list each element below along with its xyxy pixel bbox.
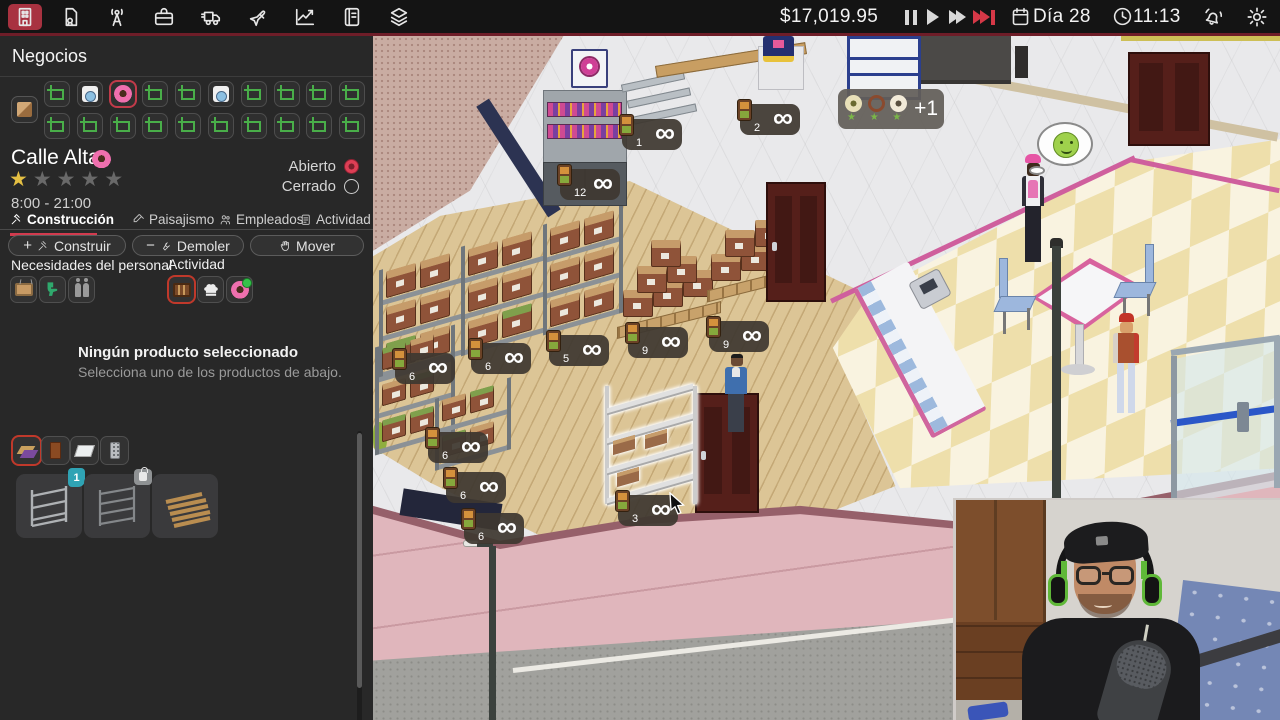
frame-icon <box>247 89 261 100</box>
business-slot-grid <box>44 81 366 139</box>
box-icon <box>17 102 32 117</box>
tab-label: Paisajismo <box>149 212 214 227</box>
washer-icon <box>82 86 98 102</box>
construir-button[interactable]: + Construir <box>8 235 126 256</box>
frame-icon <box>345 89 359 100</box>
wall-display-icon <box>74 445 95 457</box>
hammer-icon <box>37 240 49 252</box>
locked-shelf-item-card[interactable] <box>84 474 150 538</box>
business-building-icon[interactable] <box>8 4 42 30</box>
toilet-need-button[interactable] <box>39 276 66 303</box>
calendar-icon <box>1003 3 1037 29</box>
infinity-icon: ∞ <box>479 472 499 500</box>
order-quantity: 6 <box>442 450 448 462</box>
tab-label: Construcción <box>27 212 114 227</box>
tab-empleados[interactable]: Empleados <box>219 212 304 227</box>
order-quantity: 3 <box>632 513 638 525</box>
webcam-overlay <box>953 498 1280 720</box>
money-display: $17,019.95 <box>780 6 878 28</box>
frame-icon <box>214 121 228 132</box>
star-icon: ★ <box>104 168 128 191</box>
business-slot-washer[interactable] <box>77 81 103 107</box>
donut-icon <box>231 281 249 299</box>
ledger-book-icon[interactable] <box>335 4 369 30</box>
owned-count-badge: 1 <box>68 468 85 487</box>
infinity-icon: ∞ <box>428 353 448 381</box>
business-slot-donut[interactable] <box>110 81 136 107</box>
headphone-cup <box>1142 574 1162 606</box>
demoler-button[interactable]: − Demoler <box>132 235 244 256</box>
briefcase-icon[interactable] <box>147 4 181 30</box>
business-slot-frame[interactable] <box>110 113 136 139</box>
product-thumbnail-icon <box>737 99 752 121</box>
business-slot-frame[interactable] <box>339 81 365 107</box>
wrench-icon <box>160 240 172 252</box>
logistics-truck-icon[interactable] <box>194 4 228 30</box>
product-thumbnail-icon <box>461 508 476 530</box>
business-slot-frame[interactable] <box>175 81 201 107</box>
staff-needs-label: Necesidades del personal <box>11 257 172 273</box>
business-slot-frame[interactable] <box>241 81 267 107</box>
infinity-icon: ∞ <box>655 119 675 147</box>
product-thumbnail-icon <box>625 322 640 344</box>
stock-order-badge[interactable]: 6 ∞ <box>395 353 455 384</box>
shovel-icon <box>132 213 145 226</box>
stock-order-badge[interactable]: 6 ∞ <box>464 513 524 544</box>
infinity-icon: ∞ <box>582 335 602 363</box>
fast-forward-button[interactable] <box>949 8 966 26</box>
product-thumbnail-icon <box>392 348 407 370</box>
business-slot-frame[interactable] <box>339 113 365 139</box>
closed-label: Cerrado <box>282 178 336 195</box>
warehouse-slot[interactable] <box>11 96 38 123</box>
product-thumbnail-icon <box>425 427 440 449</box>
open-label: Abierto <box>288 158 336 175</box>
business-slot-frame[interactable] <box>208 113 234 139</box>
stats-chart-icon[interactable] <box>288 4 322 30</box>
production-activity-button[interactable] <box>197 276 224 303</box>
closed-radio[interactable] <box>344 179 359 194</box>
tab-label: Actividad <box>316 212 371 227</box>
business-slot-frame[interactable] <box>274 81 300 107</box>
business-slot-frame[interactable] <box>241 113 267 139</box>
stock-order-badge[interactable]: 6 ∞ <box>428 432 488 463</box>
frame-icon <box>280 89 294 100</box>
pallet-item-card[interactable] <box>152 474 218 538</box>
frame-icon <box>50 121 64 132</box>
order-quantity: 5 <box>563 353 569 365</box>
business-slot-frame[interactable] <box>306 113 332 139</box>
business-slot-frame[interactable] <box>306 81 332 107</box>
shelf-item-card[interactable]: 1 <box>16 474 82 538</box>
tv-icon <box>15 283 33 296</box>
business-slot-frame[interactable] <box>44 113 70 139</box>
order-quantity: 6 <box>478 531 484 543</box>
stock-order-badge[interactable]: 12 ∞ <box>560 169 620 200</box>
stock-order-badge[interactable]: 6 ∞ <box>471 343 531 374</box>
star-icon: ★ <box>57 168 81 191</box>
negocios-panel: Negocios Calle Alta ★★★★★ Abierto Cerrad… <box>0 36 373 720</box>
toilet-icon <box>44 281 61 298</box>
lock-icon <box>134 469 152 485</box>
accent-strip <box>0 33 1280 36</box>
time-display: 11:13 <box>1133 6 1181 28</box>
order-quantity: 2 <box>754 122 760 134</box>
order-quantity: 6 <box>485 361 491 373</box>
panel-title: Negocios <box>12 46 87 67</box>
frame-icon <box>247 121 261 132</box>
top-hud-bar: $17,019.95 Día 28 11:13 <box>0 0 1280 33</box>
stock-order-badge[interactable]: 5 ∞ <box>549 335 609 366</box>
restroom-need-button[interactable] <box>68 276 95 303</box>
infinity-icon: ∞ <box>651 495 671 523</box>
star-icon: ★ <box>9 168 33 191</box>
tab-actividad[interactable]: Actividad <box>299 212 371 227</box>
product-thumbnail-icon <box>615 490 630 512</box>
contracts-document-icon[interactable] <box>53 4 87 30</box>
infinity-icon: ∞ <box>773 104 793 132</box>
order-quantity: 12 <box>574 187 586 199</box>
order-quantity: 9 <box>642 345 648 357</box>
frame-icon <box>181 121 195 132</box>
infinity-icon: ∞ <box>497 513 517 541</box>
floor-shelf-icon <box>18 444 36 458</box>
chef-hat-icon <box>202 282 220 298</box>
frame-icon <box>181 89 195 100</box>
infinity-icon: ∞ <box>593 169 613 197</box>
business-slot-frame[interactable] <box>142 81 168 107</box>
divider <box>0 76 373 77</box>
storage-activity-button[interactable] <box>168 276 195 303</box>
shelf-icon <box>92 480 142 532</box>
stock-order-badge[interactable]: 6 ∞ <box>446 472 506 503</box>
frame-icon <box>116 121 130 132</box>
rating-stars: ★★★★★ <box>9 167 128 192</box>
star-icon: ★ <box>80 168 104 191</box>
opening-hours: 8:00 - 21:00 <box>11 195 91 212</box>
product-thumbnail-icon <box>443 467 458 489</box>
order-quantity: 6 <box>460 490 466 502</box>
button-label: Mover <box>296 238 335 254</box>
infinity-icon: ∞ <box>504 343 524 371</box>
product-thumbnail-icon <box>468 338 483 360</box>
door-icon <box>50 442 61 459</box>
business-slot-frame[interactable] <box>44 81 70 107</box>
mouse-cursor <box>669 492 687 516</box>
smile <box>1094 602 1112 608</box>
frame-icon <box>312 89 326 100</box>
product-thumbnail-icon <box>706 316 721 338</box>
glasses-lens <box>1076 566 1101 585</box>
streamer <box>1014 522 1204 720</box>
frame-icon <box>148 121 162 132</box>
stock-order-badge[interactable]: 2 ∞ <box>740 104 800 135</box>
people-icon <box>219 213 232 226</box>
empty-state-title: Ningún producto seleccionado <box>78 344 298 361</box>
donut-activity-button[interactable] <box>226 276 253 303</box>
pallet-icon <box>160 480 212 532</box>
settings-gear-icon[interactable] <box>1240 4 1274 30</box>
open-radio[interactable] <box>344 159 359 174</box>
frame-icon <box>345 121 359 132</box>
open-status-row: Abierto <box>288 158 359 175</box>
hand-icon <box>279 240 291 252</box>
empty-state-subtitle: Selecciona uno de los productos de abajo… <box>78 364 342 380</box>
product-thumbnail-icon <box>557 164 572 186</box>
button-label: Construir <box>54 238 111 254</box>
sidebar-scrollbar <box>357 431 362 720</box>
mover-button[interactable]: Mover <box>250 235 364 256</box>
app-window: $17,019.95 Día 28 11:13 Negocios Calle A… <box>0 0 1280 720</box>
business-slot-frame[interactable] <box>77 113 103 139</box>
glasses-bridge <box>1102 572 1110 575</box>
order-quantity: 9 <box>723 339 729 351</box>
marketing-antenna-icon[interactable] <box>100 4 134 30</box>
hammer-icon <box>10 213 23 226</box>
category-floor-shelf[interactable] <box>12 436 41 465</box>
headphone-cup <box>1048 574 1068 606</box>
shelf-icon <box>24 480 74 532</box>
category-appliance[interactable] <box>100 436 129 465</box>
restroom-icon <box>75 283 89 297</box>
category-door[interactable] <box>41 436 70 465</box>
business-slot-frame[interactable] <box>274 113 300 139</box>
frame-icon <box>312 121 326 132</box>
order-quantity: 6 <box>409 371 415 383</box>
business-slot-frame[interactable] <box>175 113 201 139</box>
layers-icon[interactable] <box>382 4 416 30</box>
infinity-icon: ∞ <box>742 321 762 349</box>
product-thumbnail-icon <box>619 114 634 136</box>
travel-plane-icon[interactable] <box>241 4 275 30</box>
activity-section-label: Actividad <box>168 256 225 272</box>
washer-icon <box>213 86 229 102</box>
frame-icon <box>50 89 64 100</box>
storage-crate-icon <box>173 283 191 297</box>
product-thumbnail-icon <box>546 330 561 352</box>
closed-status-row: Cerrado <box>282 178 359 195</box>
divider <box>0 229 373 230</box>
appliance-icon <box>110 442 120 459</box>
infinity-icon: ∞ <box>661 327 681 355</box>
play-button[interactable] <box>927 8 939 26</box>
category-wall-display[interactable] <box>70 436 99 465</box>
tab-label: Empleados <box>236 212 304 227</box>
frame-icon <box>280 121 294 132</box>
business-slot-washer[interactable] <box>208 81 234 107</box>
frame-icon <box>83 121 97 132</box>
infinity-icon: ∞ <box>461 432 481 460</box>
scrollbar-thumb[interactable] <box>357 433 362 688</box>
button-label: Demoler <box>177 238 230 254</box>
stock-order-badge[interactable]: 9 ∞ <box>628 327 688 358</box>
day-display: Día 28 <box>1033 6 1091 28</box>
star-icon: ★ <box>33 168 57 191</box>
skip-day-button[interactable] <box>973 8 995 26</box>
tab-bar: Construcción Paisajismo Empleados Activi… <box>0 212 373 234</box>
tab-paisajismo[interactable]: Paisajismo <box>132 212 214 227</box>
minus-glyph: − <box>146 237 155 254</box>
frame-icon <box>148 89 162 100</box>
stock-order-badge[interactable]: 1 ∞ <box>622 119 682 150</box>
tv-need-button[interactable] <box>10 276 37 303</box>
stock-order-badge[interactable]: 9 ∞ <box>709 321 769 352</box>
backwards-cap <box>1063 519 1150 565</box>
pause-button[interactable] <box>903 8 919 26</box>
glasses-lens <box>1109 566 1134 585</box>
tab-construccion[interactable]: Construcción <box>10 212 114 227</box>
plus-glyph: + <box>23 237 32 254</box>
clipboard-icon <box>299 213 312 226</box>
order-quantity: 1 <box>636 137 642 149</box>
notifications-bell-icon[interactable] <box>1196 4 1230 30</box>
donut-icon <box>114 85 132 103</box>
business-slot-frame[interactable] <box>142 113 168 139</box>
